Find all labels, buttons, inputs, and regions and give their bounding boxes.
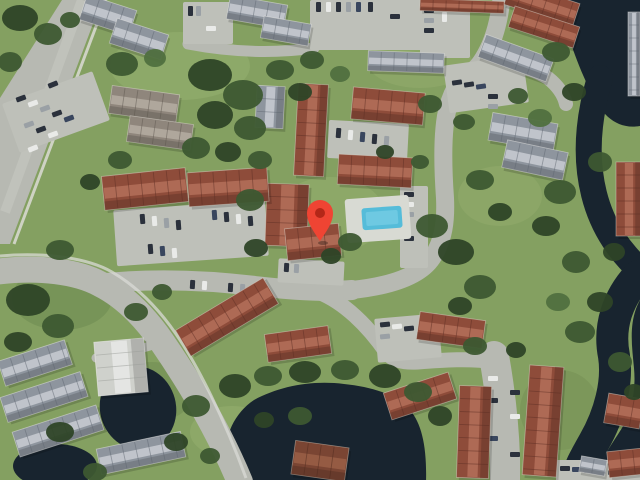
parked-car (360, 132, 366, 142)
tree-canopy (4, 332, 32, 352)
tree-canopy (488, 203, 512, 221)
tree-canopy (562, 251, 590, 273)
tree-canopy (219, 374, 251, 398)
parked-car (228, 283, 233, 292)
tree-canopy (369, 364, 401, 388)
tree-canopy (428, 406, 452, 426)
building-red-roof (616, 162, 640, 239)
parked-car (346, 2, 351, 12)
tree-canopy (152, 284, 172, 300)
tree-canopy (188, 59, 232, 91)
tree-canopy (200, 448, 220, 464)
tree-canopy (546, 293, 570, 311)
parked-car (164, 218, 170, 228)
tree-canopy (236, 189, 264, 211)
tree-canopy (338, 233, 362, 251)
parked-car (380, 322, 390, 328)
tree-canopy (254, 412, 274, 428)
tree-canopy (42, 314, 74, 338)
parked-car (190, 280, 195, 289)
tree-canopy (289, 361, 321, 383)
building-gray-roof (368, 51, 447, 77)
tree-canopy (411, 155, 429, 169)
parked-car (236, 214, 242, 224)
tree-canopy (376, 145, 394, 159)
parked-car (356, 2, 361, 12)
parked-car (248, 216, 254, 226)
parked-car (368, 2, 373, 12)
tree-canopy (588, 152, 612, 172)
parked-car (390, 14, 400, 19)
parked-car (424, 28, 434, 33)
parked-car (176, 220, 182, 230)
tree-canopy (182, 137, 210, 159)
pin-inner-circle-icon (315, 208, 325, 218)
parked-car (424, 18, 434, 23)
tree-canopy (182, 395, 210, 417)
tree-canopy (2, 5, 38, 31)
parked-car (172, 248, 178, 258)
tree-canopy (108, 151, 132, 169)
tree-canopy (603, 243, 625, 261)
parked-car (510, 452, 520, 457)
parked-car (336, 2, 341, 12)
parked-car (380, 334, 390, 340)
parked-car (326, 2, 331, 12)
tree-canopy (46, 240, 74, 260)
tree-canopy (215, 142, 241, 162)
tree-canopy (321, 248, 341, 264)
tree-canopy (608, 352, 632, 372)
tree-canopy (506, 342, 526, 358)
parked-car (148, 244, 154, 254)
tree-canopy (288, 407, 312, 425)
parked-car (206, 26, 216, 31)
parked-car (196, 6, 201, 16)
satellite-map-viewport[interactable] (0, 0, 640, 480)
tree-canopy (197, 101, 233, 129)
building-red-roof (350, 87, 427, 128)
parked-car (294, 264, 299, 273)
tree-canopy (416, 214, 448, 238)
tree-canopy (266, 60, 294, 80)
satellite-map-canvas[interactable] (0, 0, 640, 480)
tree-canopy (248, 151, 272, 169)
parked-car (284, 263, 289, 272)
building-red-roof (456, 385, 494, 480)
tree-canopy (508, 88, 528, 104)
tree-canopy (244, 239, 268, 257)
tree-canopy (542, 42, 570, 62)
tree-canopy (254, 366, 282, 386)
parked-car (510, 414, 520, 419)
tree-canopy (6, 284, 50, 316)
parked-car (224, 212, 230, 222)
parked-car (384, 136, 390, 146)
parked-car (316, 2, 321, 12)
tree-canopy (80, 174, 100, 190)
parked-car (392, 324, 402, 330)
building-gray-roof (628, 12, 640, 99)
tree-canopy (418, 95, 442, 113)
parked-car (160, 246, 166, 256)
parked-car (488, 376, 498, 381)
parked-car (188, 6, 193, 16)
tree-canopy (587, 292, 613, 312)
tree-canopy (565, 321, 595, 343)
tree-canopy (223, 80, 263, 110)
parked-car (372, 134, 378, 144)
building-light-roof (94, 338, 151, 399)
parked-car (560, 466, 570, 471)
parked-car (212, 210, 218, 220)
parked-car (140, 214, 146, 224)
tree-canopy (144, 49, 166, 67)
building-red-roof (337, 154, 415, 191)
parked-car (348, 130, 354, 140)
tree-canopy (106, 52, 138, 76)
tree-canopy (532, 216, 560, 236)
tree-canopy (404, 382, 432, 402)
tree-canopy (300, 51, 324, 69)
tree-canopy (448, 297, 472, 315)
tree-canopy (288, 83, 312, 101)
tree-canopy (544, 180, 576, 204)
tree-canopy (464, 275, 496, 299)
tree-canopy (453, 114, 475, 130)
tree-canopy (124, 303, 148, 321)
tree-canopy (463, 337, 487, 355)
tree-canopy (234, 116, 266, 140)
parked-car (202, 281, 207, 290)
tree-canopy (330, 66, 350, 82)
tree-canopy (34, 23, 62, 45)
parked-car (404, 326, 414, 332)
tree-canopy (562, 83, 586, 101)
tree-canopy (46, 422, 74, 442)
parked-car (152, 216, 158, 226)
tree-canopy (164, 433, 188, 451)
tree-canopy (466, 170, 494, 190)
parked-car (488, 104, 498, 109)
tree-canopy (438, 239, 474, 265)
pin-shadow (318, 241, 328, 245)
tree-canopy (331, 360, 359, 380)
parked-car (510, 390, 520, 395)
tree-canopy (60, 12, 80, 28)
parked-car (488, 94, 498, 99)
building-red-roof (607, 448, 640, 480)
tree-canopy (528, 109, 552, 127)
parked-car (336, 128, 342, 138)
